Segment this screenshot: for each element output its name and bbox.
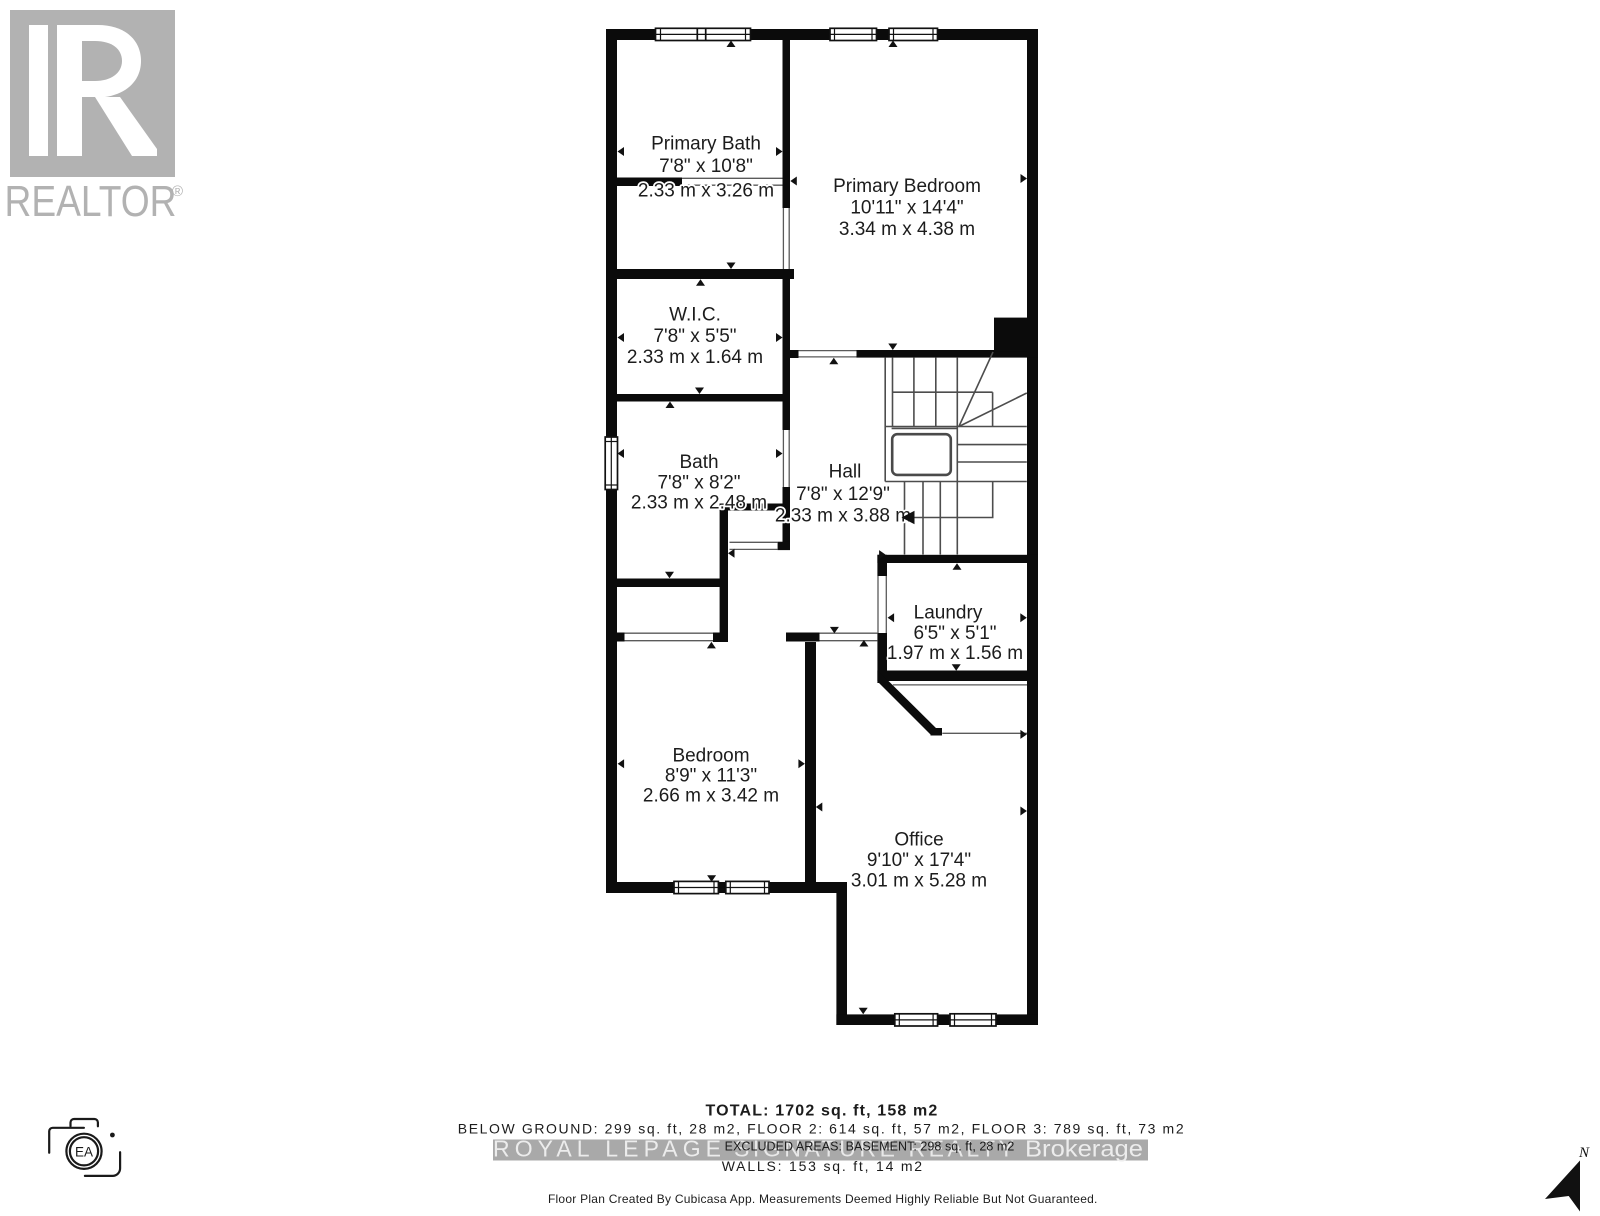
svg-text:EA: EA (75, 1145, 93, 1160)
svg-text:BELOW GROUND: 299 sq. ft, 28 m: BELOW GROUND: 299 sq. ft, 28 m2, FLOOR 2… (458, 1121, 1185, 1137)
svg-text:W.I.C.: W.I.C. (669, 305, 721, 326)
svg-text:Primary Bedroom: Primary Bedroom (833, 176, 981, 197)
svg-text:2.66 m x 3.42 m: 2.66 m x 3.42 m (643, 785, 779, 806)
svg-text:7'8" x 10'8": 7'8" x 10'8" (659, 156, 753, 177)
svg-text:8'9" x 11'3": 8'9" x 11'3" (665, 765, 757, 786)
svg-text:TOTAL: 1702 sq. ft, 158 m2: TOTAL: 1702 sq. ft, 158 m2 (706, 1103, 939, 1120)
svg-text:3.01 m x 5.28 m: 3.01 m x 5.28 m (851, 871, 987, 892)
svg-text:1.97 m x 1.56 m: 1.97 m x 1.56 m (887, 643, 1023, 664)
svg-text:9'10" x 17'4": 9'10" x 17'4" (867, 850, 971, 871)
svg-text:Bedroom: Bedroom (672, 745, 749, 766)
svg-text:2.33 m x 2.48 m: 2.33 m x 2.48 m (631, 493, 767, 514)
svg-text:6'5" x 5'1": 6'5" x 5'1" (913, 623, 996, 644)
svg-text:®: ® (172, 183, 183, 200)
svg-text:Brokerage: Brokerage (1025, 1136, 1143, 1162)
svg-text:N: N (1578, 1145, 1590, 1161)
svg-text:2.33 m x 3.88 m: 2.33 m x 3.88 m (775, 506, 911, 527)
svg-text:7'8" x 12'9": 7'8" x 12'9" (796, 484, 890, 505)
svg-text:Primary Bath: Primary Bath (651, 134, 761, 155)
svg-text:3.34 m x 4.38 m: 3.34 m x 4.38 m (839, 219, 975, 240)
svg-text:7'8" x 8'2": 7'8" x 8'2" (657, 473, 740, 494)
svg-text:Bath: Bath (679, 452, 718, 473)
svg-text:2.33 m x 1.64 m: 2.33 m x 1.64 m (627, 347, 763, 368)
svg-text:2.33 m x 3.26 m: 2.33 m x 3.26 m (638, 181, 774, 202)
svg-text:Floor Plan Created By Cubicasa: Floor Plan Created By Cubicasa App. Meas… (548, 1192, 1098, 1206)
svg-text:Laundry: Laundry (914, 603, 983, 624)
svg-text:EXCLUDED AREAS: BASEMENT: 298: EXCLUDED AREAS: BASEMENT: 298 sq. ft, 28… (725, 1140, 1015, 1154)
svg-text:ROYAL LEPAGE: ROYAL LEPAGE (493, 1136, 721, 1162)
svg-text:10'11" x 14'4": 10'11" x 14'4" (850, 198, 963, 219)
svg-text:REALTOR: REALTOR (5, 177, 177, 226)
svg-text:Office: Office (894, 830, 943, 851)
svg-text:WALLS: 153 sq. ft, 14 m2: WALLS: 153 sq. ft, 14 m2 (722, 1158, 924, 1174)
svg-text:Hall: Hall (829, 462, 862, 483)
svg-text:7'8" x 5'5": 7'8" x 5'5" (653, 326, 736, 347)
